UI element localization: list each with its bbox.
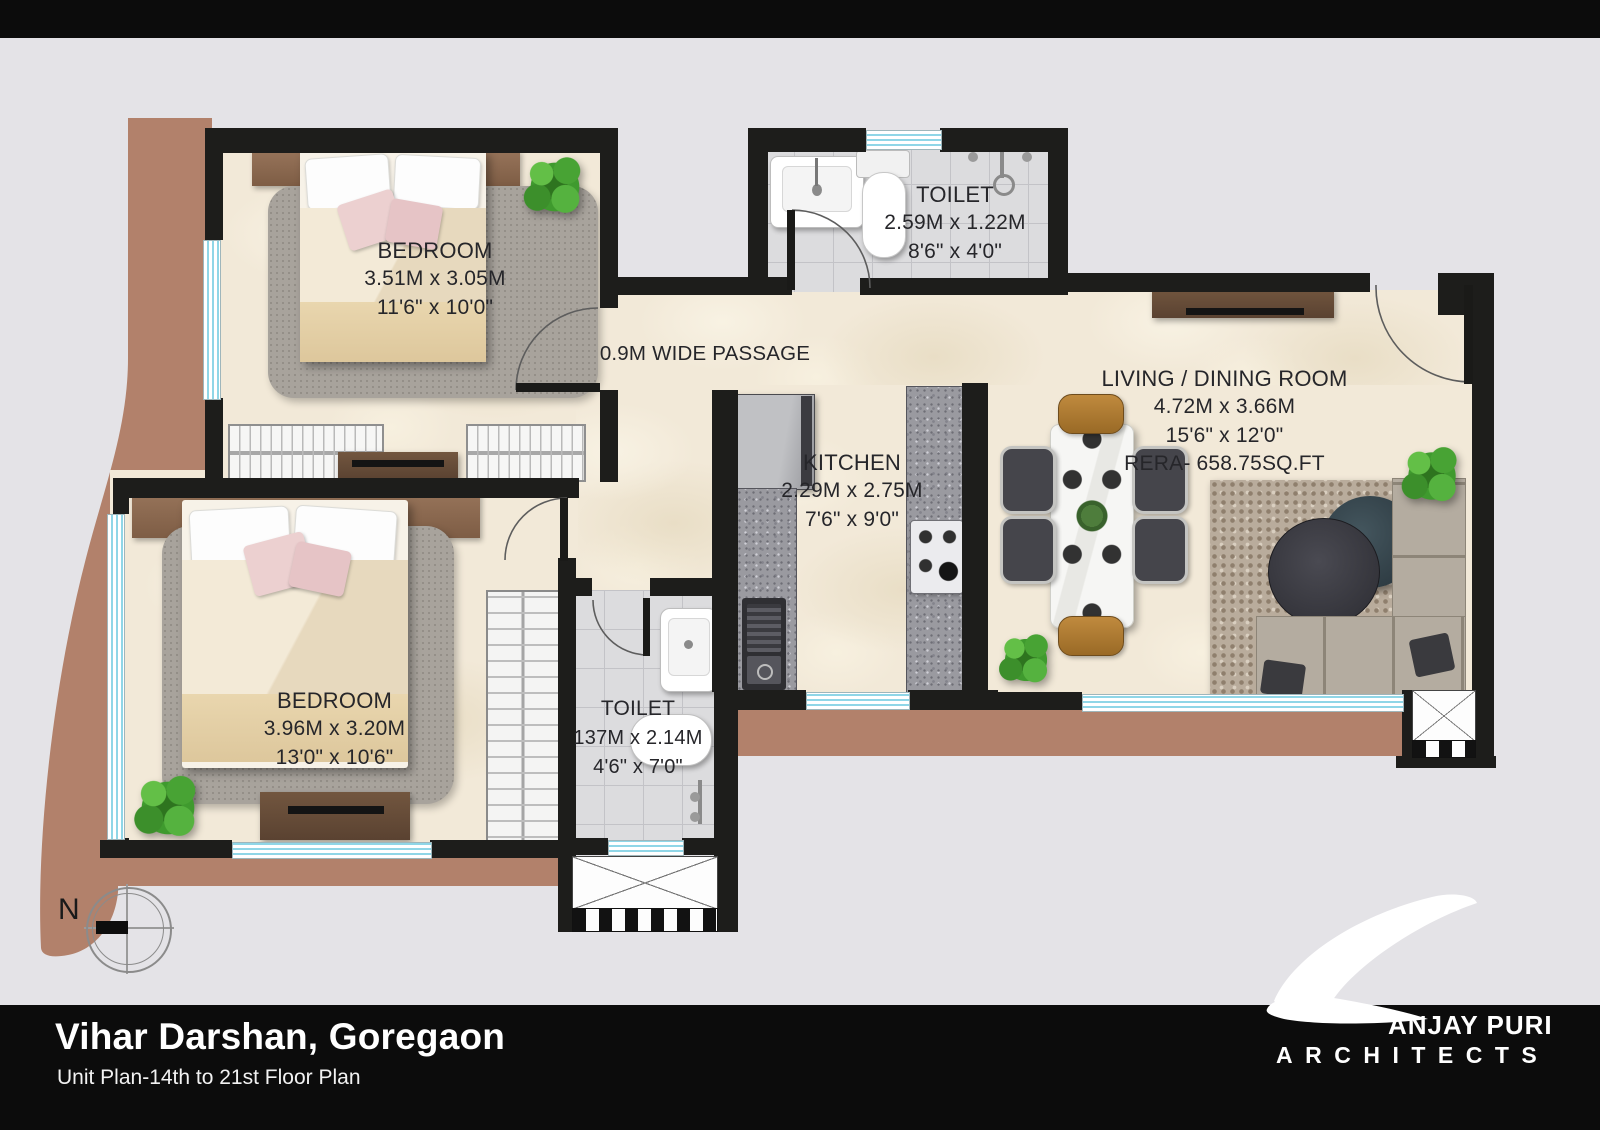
living-label: LIVING / DINING ROOM 4.72M x 3.66M 15'6"…: [1082, 364, 1367, 478]
plan-subtitle: Unit Plan-14th to 21st Floor Plan: [57, 1066, 361, 1090]
toilet1-name: TOILET: [845, 180, 1065, 209]
compass-north-bar: [96, 921, 128, 934]
bedroom2-name: BEDROOM: [222, 686, 447, 715]
compass-north-letter: N: [58, 893, 80, 927]
living-rera-area: RERA- 658.75SQ.FT: [1082, 450, 1367, 478]
passage-name: 0.9M WIDE PASSAGE: [575, 340, 835, 367]
bedroom1-dim-m: 3.51M x 3.05M: [320, 265, 550, 293]
bedroom2-dim-ft: 13'0" x 10'6": [222, 744, 447, 772]
kitchen-dim-ft: 7'6" x 9'0": [742, 506, 962, 534]
bedroom1-dim-ft: 11'6" x 10'0": [320, 294, 550, 322]
living-name: LIVING / DINING ROOM: [1082, 364, 1367, 393]
passage-label: 0.9M WIDE PASSAGE: [575, 340, 835, 367]
kitchen-label: KITCHEN 2.29M x 2.75M 7'6" x 9'0": [742, 448, 962, 534]
toilet2-name: TOILET: [548, 694, 728, 724]
kitchen-name: KITCHEN: [742, 448, 962, 477]
architect-brand-sub: ARCHITECTS: [1276, 1042, 1549, 1069]
toilet1-label: TOILET 2.59M x 1.22M 8'6" x 4'0": [845, 180, 1065, 266]
bedroom1-name: BEDROOM: [320, 236, 550, 265]
toilet2-dim-m: 137M x 2.14M: [548, 724, 728, 753]
toilet1-dim-ft: 8'6" x 4'0": [845, 238, 1065, 266]
architect-brand-name: ANJAY PURI: [1388, 1010, 1553, 1041]
toilet1-dim-m: 2.59M x 1.22M: [845, 209, 1065, 237]
toilet2-label: TOILET 137M x 2.14M 4'6" x 7'0": [548, 694, 728, 782]
bedroom2-dim-m: 3.96M x 3.20M: [222, 715, 447, 743]
toilet2-dim-ft: 4'6" x 7'0": [548, 753, 728, 782]
project-title: Vihar Darshan, Goregaon: [55, 1016, 505, 1058]
bedroom2-label: BEDROOM 3.96M x 3.20M 13'0" x 10'6": [222, 686, 447, 772]
living-dim-m: 4.72M x 3.66M: [1082, 393, 1367, 421]
kitchen-dim-m: 2.29M x 2.75M: [742, 477, 962, 505]
living-dim-ft: 15'6" x 12'0": [1082, 422, 1367, 450]
floor-plan-page: { "footer": { "title": "Vihar Darshan, G…: [0, 0, 1600, 1130]
bedroom1-label: BEDROOM 3.51M x 3.05M 11'6" x 10'0": [320, 236, 550, 322]
